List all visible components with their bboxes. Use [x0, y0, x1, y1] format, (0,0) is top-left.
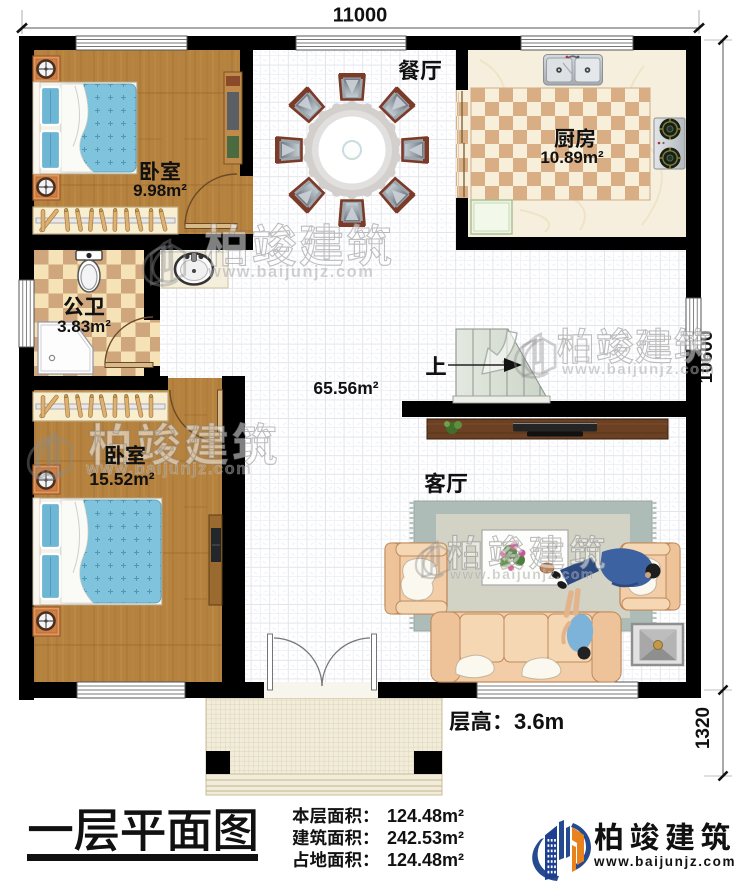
svg-text:124.48m²: 124.48m²: [387, 850, 464, 870]
svg-text:9.98m²: 9.98m²: [133, 181, 187, 200]
svg-text:3.83m²: 3.83m²: [57, 317, 111, 336]
svg-text:1320: 1320: [693, 707, 714, 749]
svg-text:www.baijunjz.com: www.baijunjz.com: [561, 361, 715, 378]
svg-text:15.52m²: 15.52m²: [89, 469, 154, 489]
svg-text:65.56m²: 65.56m²: [313, 378, 378, 398]
svg-text:www.baijunjz.com: www.baijunjz.com: [593, 854, 736, 869]
svg-text:www.baijunjz.com: www.baijunjz.com: [207, 263, 374, 281]
svg-text:11000: 11000: [333, 5, 388, 27]
svg-text:www.baijunjz.com: www.baijunjz.com: [449, 566, 595, 582]
svg-text:124.48m²: 124.48m²: [387, 806, 464, 826]
svg-text:3.6m: 3.6m: [514, 709, 564, 734]
svg-text:242.53m²: 242.53m²: [387, 828, 464, 848]
svg-text:10.89m²: 10.89m²: [540, 148, 604, 167]
